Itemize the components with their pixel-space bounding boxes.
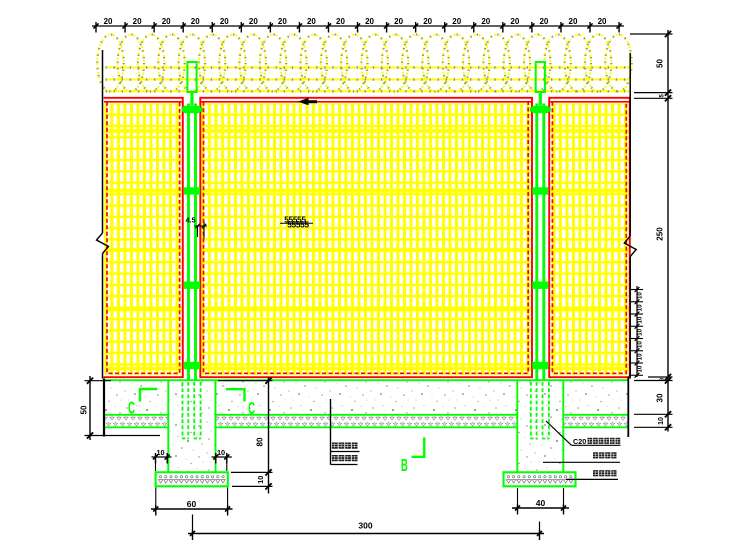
svg-text:10: 10 [637, 316, 644, 324]
svg-text:20: 20 [307, 17, 316, 26]
svg-text:50: 50 [80, 405, 89, 414]
svg-text:10: 10 [637, 328, 644, 336]
svg-text:10: 10 [217, 448, 225, 457]
svg-text:3: 3 [660, 378, 666, 381]
svg-text:20: 20 [191, 17, 200, 26]
svg-text:20: 20 [278, 17, 287, 26]
svg-text:20: 20 [365, 17, 374, 26]
svg-text:B: B [401, 455, 408, 475]
svg-text:10: 10 [637, 341, 644, 349]
svg-text:30: 30 [656, 393, 665, 402]
svg-text:250: 250 [656, 227, 665, 241]
svg-text:20: 20 [481, 17, 490, 26]
svg-text:20: 20 [249, 17, 258, 26]
svg-text:20: 20 [336, 17, 345, 26]
svg-text:10: 10 [637, 365, 644, 373]
svg-text:20: 20 [539, 17, 548, 26]
svg-text:10: 10 [637, 292, 644, 300]
svg-text:20: 20 [104, 17, 113, 26]
svg-text:20: 20 [569, 17, 578, 26]
svg-text:20: 20 [162, 17, 171, 26]
svg-text:10: 10 [256, 476, 265, 484]
svg-text:20: 20 [598, 17, 607, 26]
svg-text:40: 40 [536, 498, 546, 508]
svg-text:20: 20 [510, 17, 519, 26]
svg-text:55555: 55555 [287, 220, 309, 230]
svg-text:60: 60 [187, 499, 197, 509]
svg-text:10: 10 [156, 448, 164, 457]
svg-text:10: 10 [637, 353, 644, 361]
svg-text:80: 80 [256, 437, 265, 446]
svg-text:C: C [128, 397, 135, 417]
svg-text:20: 20 [423, 17, 432, 26]
svg-text:C: C [248, 398, 255, 418]
svg-text:4.5: 4.5 [186, 216, 196, 225]
svg-text:C20: C20 [573, 437, 586, 446]
svg-text:10: 10 [658, 417, 665, 425]
svg-text:20: 20 [220, 17, 229, 26]
svg-text:20: 20 [133, 17, 142, 26]
svg-text:10: 10 [637, 304, 644, 312]
svg-text:50: 50 [656, 59, 665, 68]
svg-text:300: 300 [358, 521, 372, 531]
svg-text:20: 20 [394, 17, 403, 26]
svg-text:20: 20 [452, 17, 461, 26]
